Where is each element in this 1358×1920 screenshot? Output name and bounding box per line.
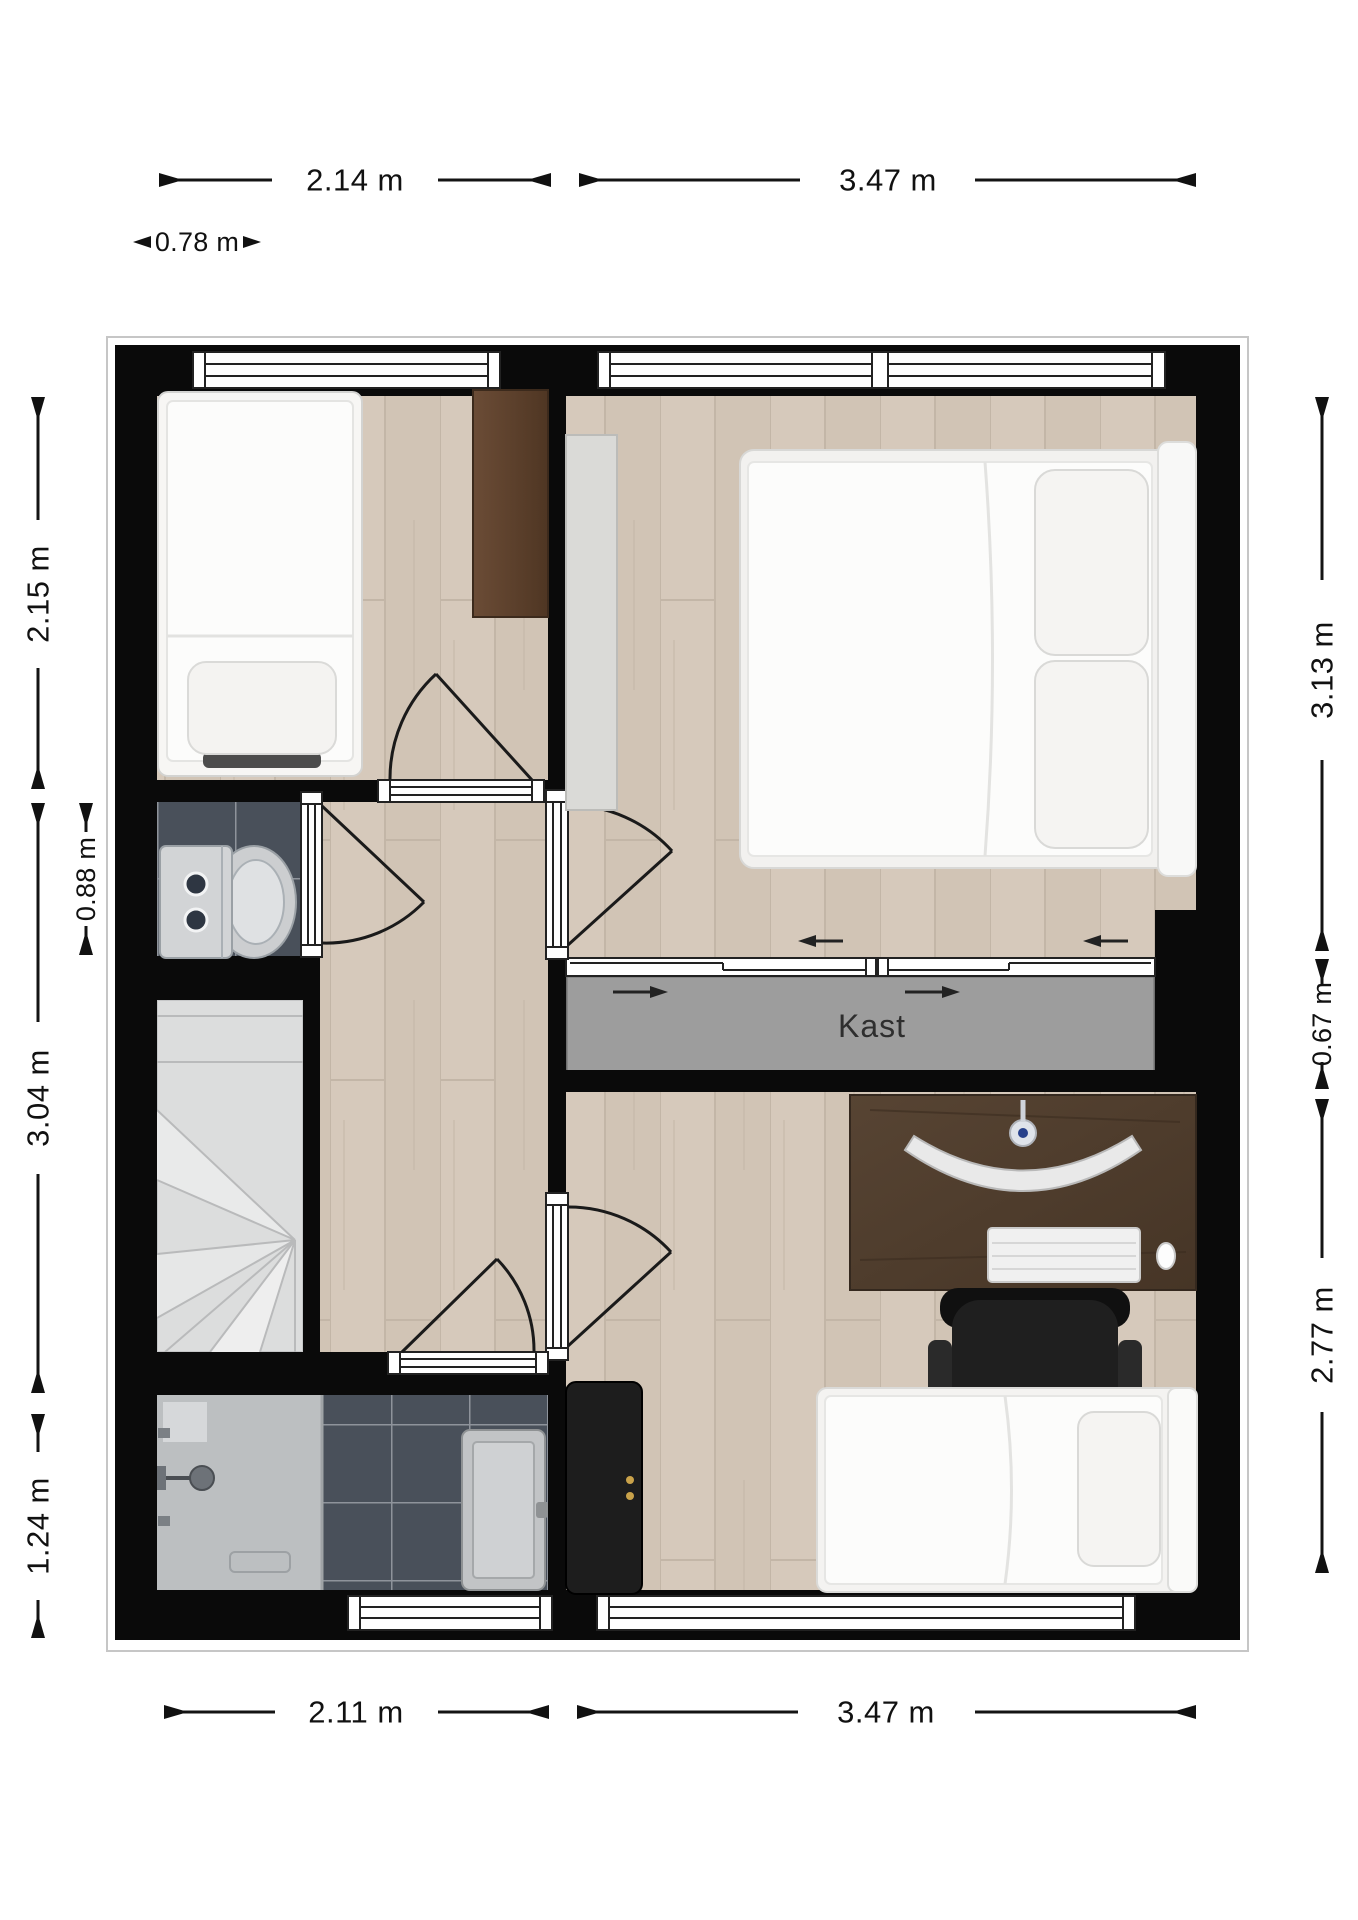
single-bed-1 bbox=[158, 392, 362, 776]
wall-below-closet bbox=[548, 1070, 1196, 1092]
closet-label: Kast bbox=[838, 1008, 906, 1044]
dim-label: 3.13 m bbox=[1305, 621, 1340, 719]
toilet-flush-button bbox=[185, 873, 207, 895]
dim-label: 3.47 m bbox=[837, 1695, 935, 1730]
dim-label: 0.67 m bbox=[1307, 982, 1337, 1066]
wall-divider-upper bbox=[548, 396, 566, 800]
dim-label: 2.15 m bbox=[21, 545, 56, 643]
toilet-flush-button bbox=[185, 909, 207, 931]
dim-top-right: 3.47 m bbox=[580, 163, 1195, 198]
double-bed-pillow-1 bbox=[1035, 470, 1148, 655]
toilet-icon bbox=[160, 846, 296, 958]
dim-label: 3.04 m bbox=[21, 1049, 56, 1147]
bed2-pillow bbox=[1078, 1412, 1160, 1566]
dim-left-toilet: 0.88 m bbox=[71, 804, 101, 954]
hallway-floor bbox=[320, 802, 548, 1352]
dim-bottom-right: 3.47 m bbox=[578, 1695, 1195, 1730]
floor-plan-svg: Kast bbox=[0, 0, 1358, 1920]
double-bed-headboard bbox=[1158, 442, 1196, 876]
window-bottom-bedroom3 bbox=[597, 1596, 1135, 1630]
dim-top-left: 2.14 m bbox=[160, 163, 550, 198]
desk bbox=[850, 1095, 1196, 1290]
double-bed-pillow-2 bbox=[1035, 661, 1148, 848]
dim-label: 0.78 m bbox=[155, 227, 239, 257]
dresser-knob bbox=[626, 1476, 634, 1484]
floor-plan-page: Kast bbox=[0, 0, 1358, 1920]
mouse-icon bbox=[1157, 1243, 1175, 1269]
dim-left-hall: 3.04 m bbox=[21, 804, 56, 1392]
dim-entry: 0.78 m bbox=[133, 227, 261, 257]
wardrobe-gray bbox=[566, 435, 617, 810]
window-top-right bbox=[598, 352, 1165, 388]
spiral-stairs bbox=[157, 1000, 303, 1352]
window-bottom-bathroom bbox=[348, 1596, 552, 1630]
dim-label: 3.47 m bbox=[839, 163, 937, 198]
closet-area: Kast bbox=[566, 976, 1155, 1072]
dim-right-bedroom2: 3.13 m bbox=[1305, 398, 1340, 950]
bed2-headboard bbox=[1168, 1388, 1197, 1592]
wall-left bbox=[115, 345, 157, 1640]
shower-head bbox=[190, 1466, 214, 1490]
window-top-left bbox=[193, 352, 500, 388]
dim-right-bedroom3: 2.77 m bbox=[1305, 1100, 1340, 1572]
shower-door-panel bbox=[462, 1430, 548, 1590]
dresser-knob bbox=[626, 1492, 634, 1500]
dim-bottom-left: 2.11 m bbox=[165, 1695, 548, 1730]
wall-divider-lower bbox=[548, 1348, 566, 1590]
dresser-dark bbox=[566, 1382, 642, 1594]
floor-plan: Kast bbox=[107, 337, 1248, 1651]
wall-toilet-stairs bbox=[157, 956, 320, 1000]
dim-label: 1.24 m bbox=[21, 1477, 56, 1575]
keyboard-icon bbox=[988, 1228, 1140, 1282]
single-bed-2 bbox=[817, 1388, 1197, 1592]
dim-label: 2.77 m bbox=[1305, 1286, 1340, 1384]
wall-right-jog bbox=[1155, 910, 1240, 1092]
dim-left-bedroom1: 2.15 m bbox=[21, 398, 56, 788]
dim-label: 0.88 m bbox=[71, 837, 101, 921]
dim-right-closet: 0.67 m bbox=[1307, 960, 1337, 1088]
double-bed bbox=[740, 442, 1196, 876]
dim-label: 2.14 m bbox=[306, 163, 404, 198]
dim-label: 2.11 m bbox=[308, 1695, 403, 1730]
wardrobe-brown bbox=[473, 390, 548, 617]
door-handle bbox=[536, 1502, 548, 1518]
dim-left-bathroom: 1.24 m bbox=[21, 1415, 56, 1637]
bed1-pillow bbox=[188, 662, 336, 754]
